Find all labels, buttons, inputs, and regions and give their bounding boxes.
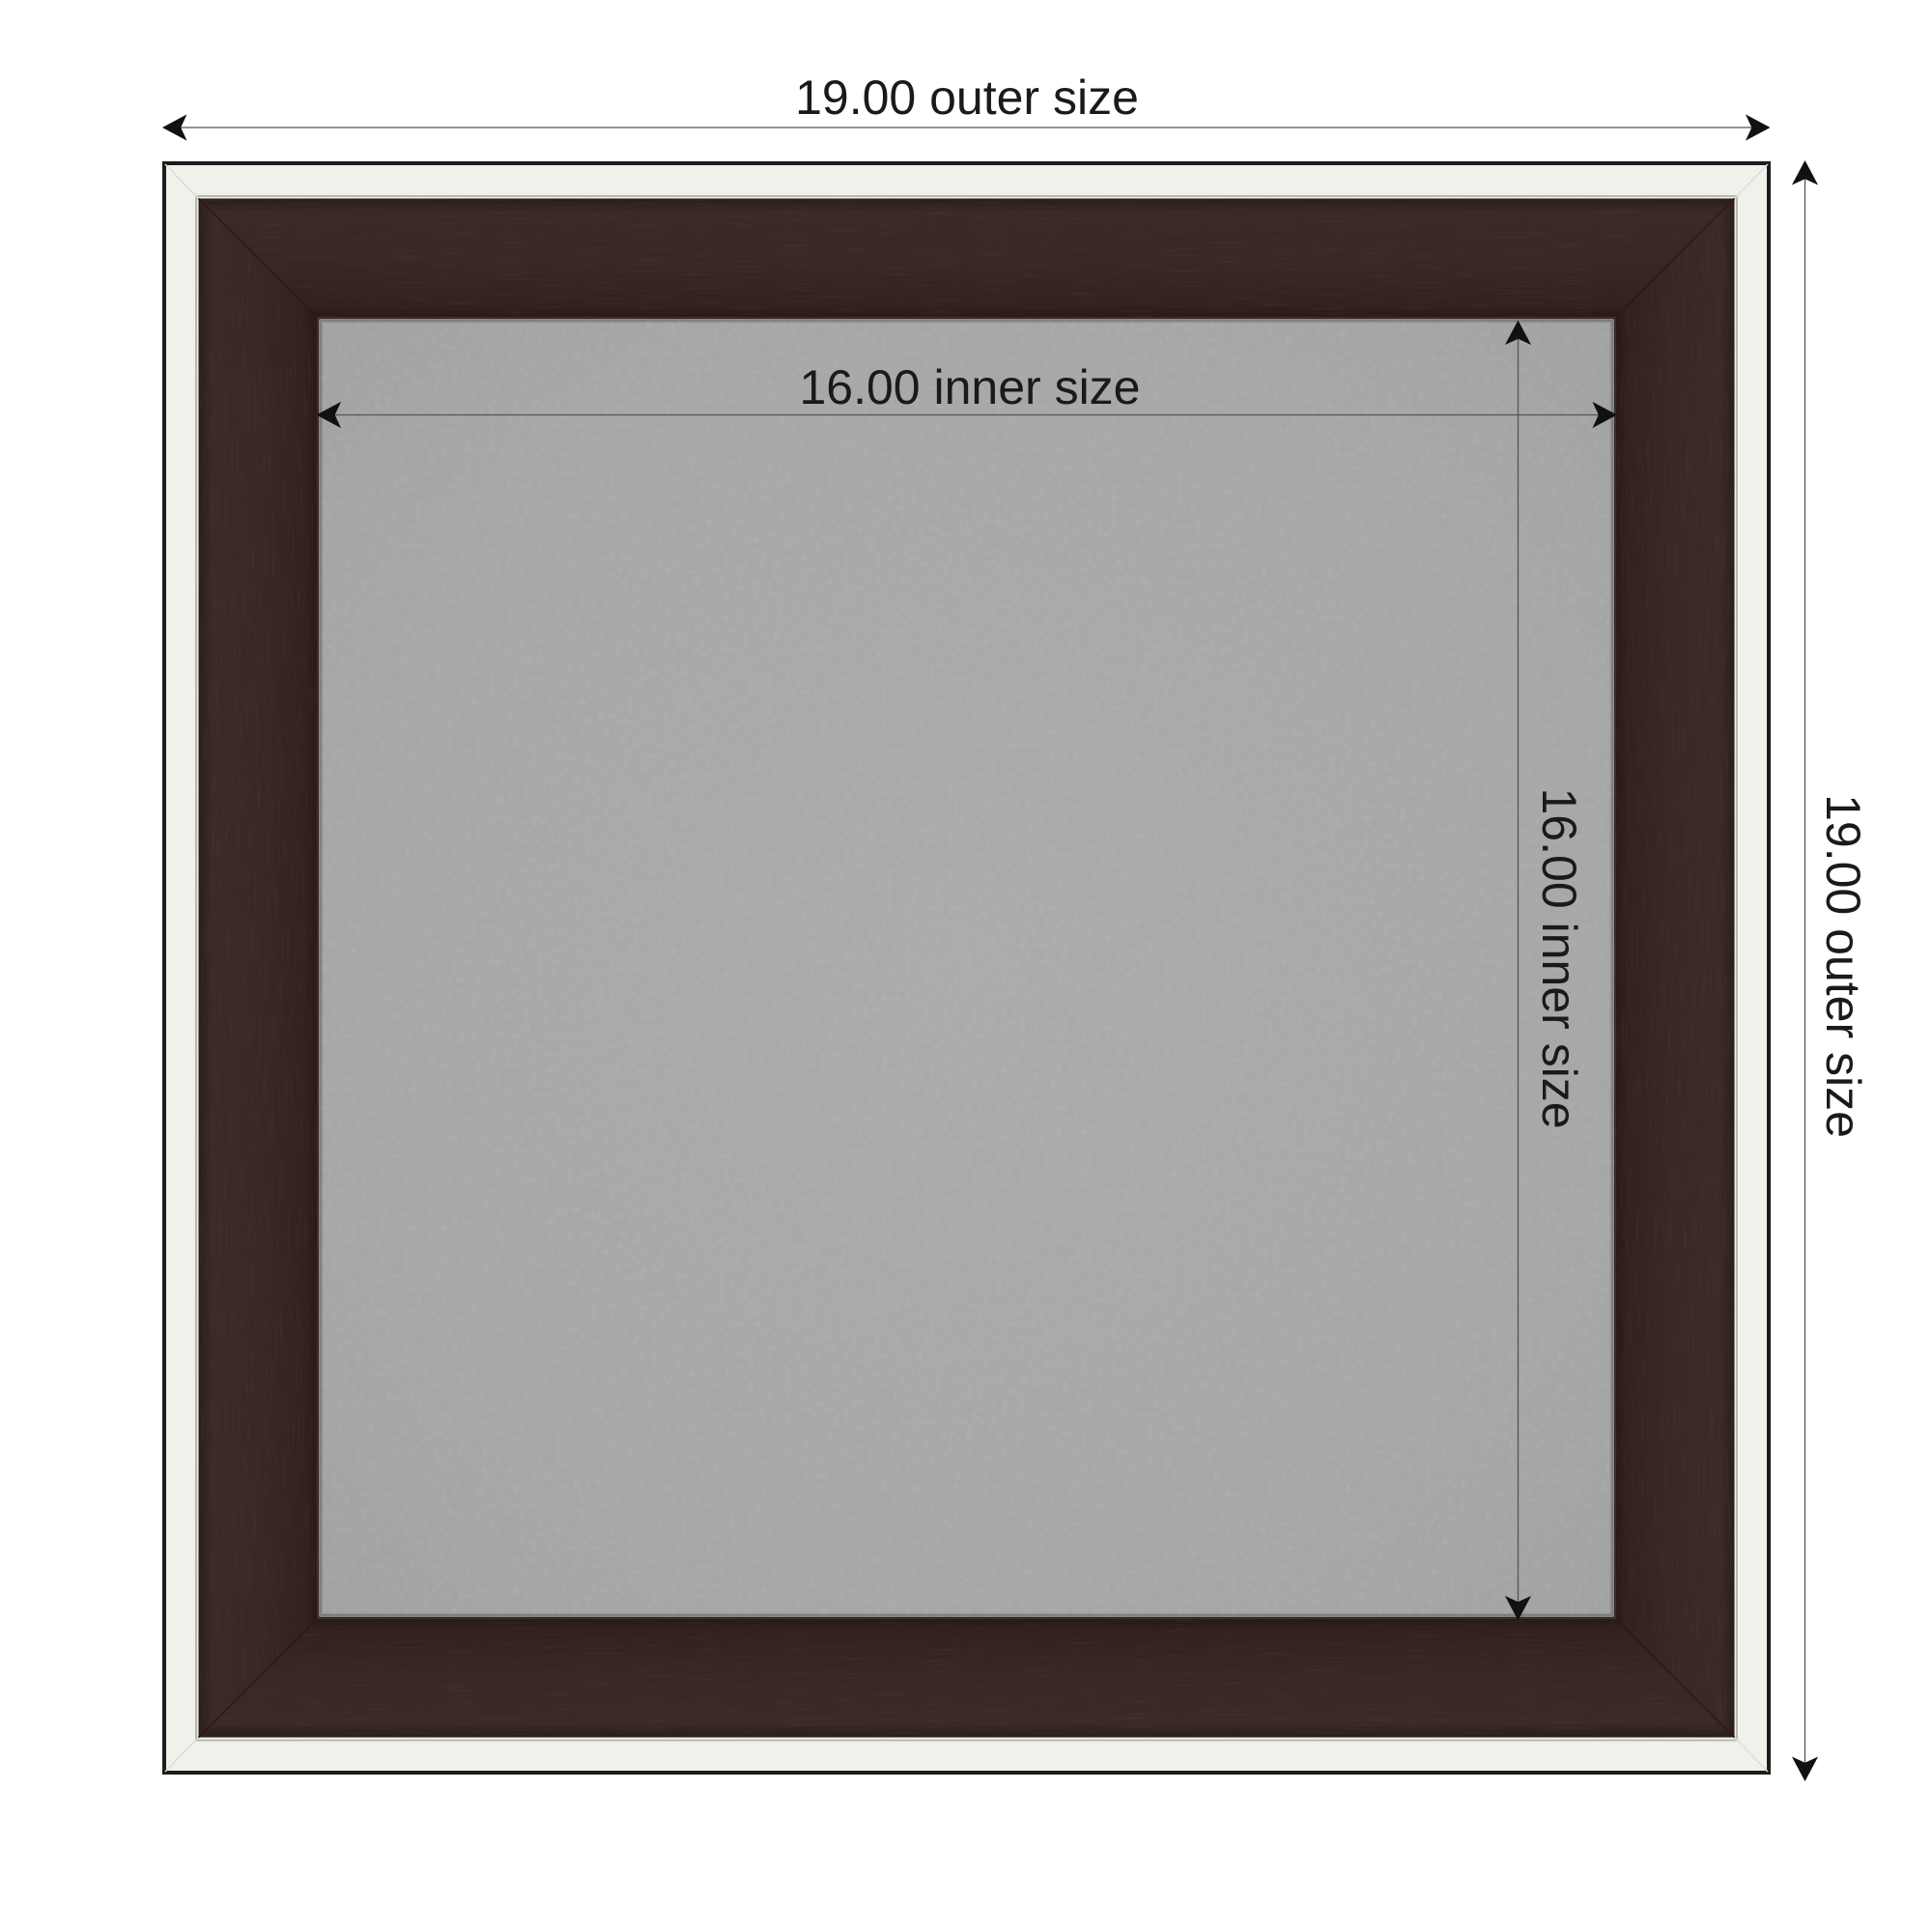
svg-text:19.00 outer size: 19.00 outer size [795,71,1139,125]
svg-text:19.00 outer size: 19.00 outer size [1816,794,1870,1138]
svg-text:16.00 inner size: 16.00 inner size [799,360,1140,414]
svg-text:16.00 inner size: 16.00 inner size [1532,787,1586,1128]
